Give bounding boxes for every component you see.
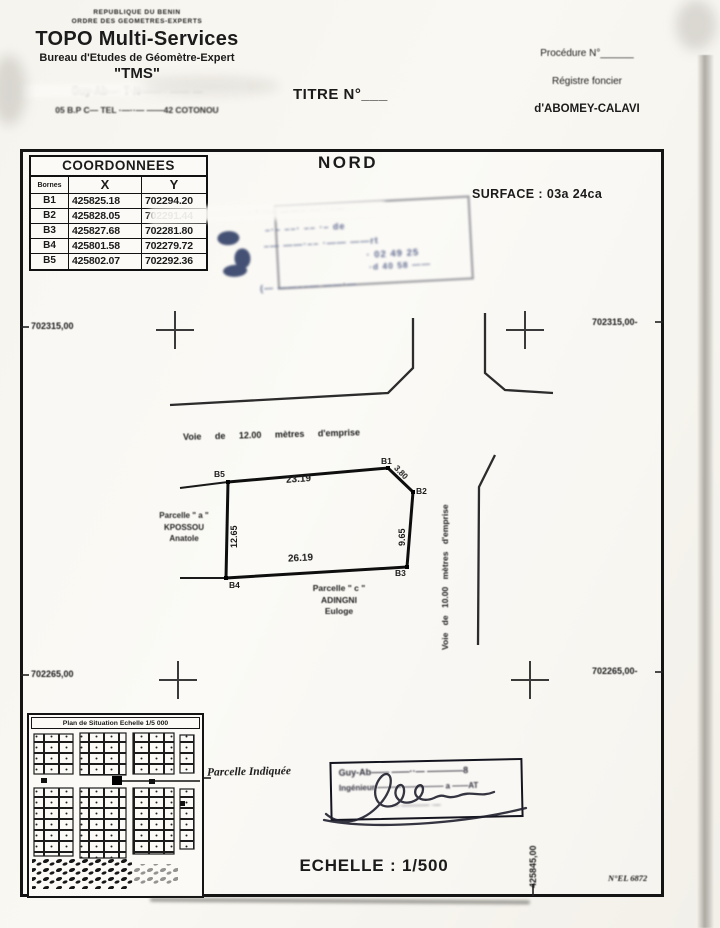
- grid-label-bottom-left: 702265,00: [31, 669, 74, 679]
- stamp-emblem: [223, 264, 248, 277]
- cell-x: 425827.68: [69, 224, 142, 239]
- cell-x: 425828.05: [69, 209, 142, 224]
- grid-label-bottom-vertical: 425845,00: [528, 845, 538, 888]
- situation-map: Plan de Situation Echelle 1/5 000: [27, 713, 204, 898]
- north-label: NORD: [278, 153, 418, 173]
- parcel-a-line: Parcelle " a ": [148, 510, 220, 522]
- parcel-c-line: Euloge: [296, 606, 382, 618]
- scan-smudge: [140, 78, 280, 94]
- borne-label-b3: B3: [395, 568, 406, 578]
- cell-borne: B4: [31, 239, 69, 254]
- cell-x: 425802.07: [69, 254, 142, 269]
- borne-label-b2: B2: [416, 486, 427, 496]
- registre-label: Régistre foncier: [502, 76, 672, 87]
- situation-map-drawing: [29, 731, 200, 891]
- parcel-c-label: Parcelle " c " ADINGNI Euloge: [296, 583, 382, 618]
- cell-y: 702279.72: [142, 239, 206, 254]
- col-header-y: Y: [142, 177, 206, 194]
- address-line: 05 B.P C— TEL ·—··— ——42 COTONOU: [12, 105, 262, 115]
- bureau-line: Bureau d'Etudes de Géomètre-Expert: [12, 52, 262, 64]
- signature-box: Guy-Ab—— ——··— ————8 Ingénieur ——— —————…: [329, 758, 523, 821]
- cell-x: 425825.18: [69, 194, 142, 209]
- length-label-bottom: 26.19: [288, 552, 314, 564]
- cell-x: 425801.58: [69, 239, 142, 254]
- borne-label-b1: B1: [381, 456, 392, 466]
- parcel-a-line: Anatole: [148, 533, 220, 545]
- cell-y: 702281.80: [142, 224, 206, 239]
- cell-borne: B1: [31, 194, 69, 209]
- table-title: COORDONNEES: [31, 157, 206, 177]
- signature-title-line: Ingénieur ——— ————— a ——AT: [339, 781, 479, 793]
- signature-name-line: Guy-Ab—— ——··— ————8: [339, 765, 469, 778]
- borne-label-b5: B5: [214, 469, 225, 479]
- length-label-right: 9.65: [397, 528, 407, 546]
- titre-label: TITRE N°___: [293, 86, 388, 103]
- page-fold-line: [150, 898, 530, 905]
- parcel-c-line: ADINGNI: [296, 595, 382, 607]
- scale-label: ECHELLE : 1/500: [264, 856, 484, 876]
- org-line-2: ORDRE DES GEOMETRES-EXPERTS: [12, 17, 262, 26]
- scanned-survey-document: REPUBLIQUE DU BENIN ORDRE DES GEOMETRES-…: [0, 0, 720, 928]
- scan-smudge: [676, 0, 716, 50]
- grid-label-bottom-right: 702265,00-: [592, 666, 638, 676]
- col-header-bornes: Bornes: [31, 177, 69, 194]
- cell-borne: B5: [31, 254, 69, 269]
- signature-extra-line: — ———— ·—: [392, 802, 440, 810]
- borne-label-b4: B4: [229, 580, 240, 590]
- document-number: N°EL 6872: [608, 873, 647, 883]
- stamp-emblem: [217, 231, 240, 246]
- grid-label-top-right: 702315,00-: [592, 317, 638, 327]
- situation-map-title: Plan de Situation Echelle 1/5 000: [31, 717, 200, 729]
- org-line-1: REPUBLIQUE DU BENIN: [12, 8, 262, 17]
- cell-y: 702292.36: [142, 254, 206, 269]
- parcel-a-label: Parcelle " a " KPOSSOU Anatole: [148, 510, 220, 545]
- surface-label: SURFACE : 03a 24ca: [472, 187, 602, 201]
- cell-borne: B2: [31, 209, 69, 224]
- indicated-parcel-label: Parcelle Indiquée: [207, 765, 291, 778]
- col-header-x: X: [69, 177, 142, 194]
- company-name: TOPO Multi-Services: [12, 28, 262, 51]
- header-right-block: Procédure N°______ Régistre foncier d'AB…: [502, 48, 672, 115]
- procedure-label: Procédure N°______: [502, 48, 672, 59]
- cell-borne: B3: [31, 224, 69, 239]
- commune-label: d'ABOMEY-CALAVI: [502, 103, 672, 115]
- road-label-vertical: Voie de 10.00 mètres d'emprise: [440, 452, 450, 650]
- parcel-a-line: KPOSSOU: [148, 522, 220, 534]
- length-label-left: 12.65: [229, 525, 239, 548]
- grid-label-top-left: 702315,00: [31, 321, 74, 331]
- indicated-parcel-mark: [112, 776, 122, 785]
- parcel-c-line: Parcelle " c ": [296, 583, 382, 595]
- stamp-line: (— ——––— ——·—: [260, 278, 357, 293]
- page-edge-shadow: [697, 55, 714, 928]
- header-left-block: REPUBLIQUE DU BENIN ORDRE DES GEOMETRES-…: [12, 8, 262, 115]
- length-label-top: 23.19: [286, 473, 312, 486]
